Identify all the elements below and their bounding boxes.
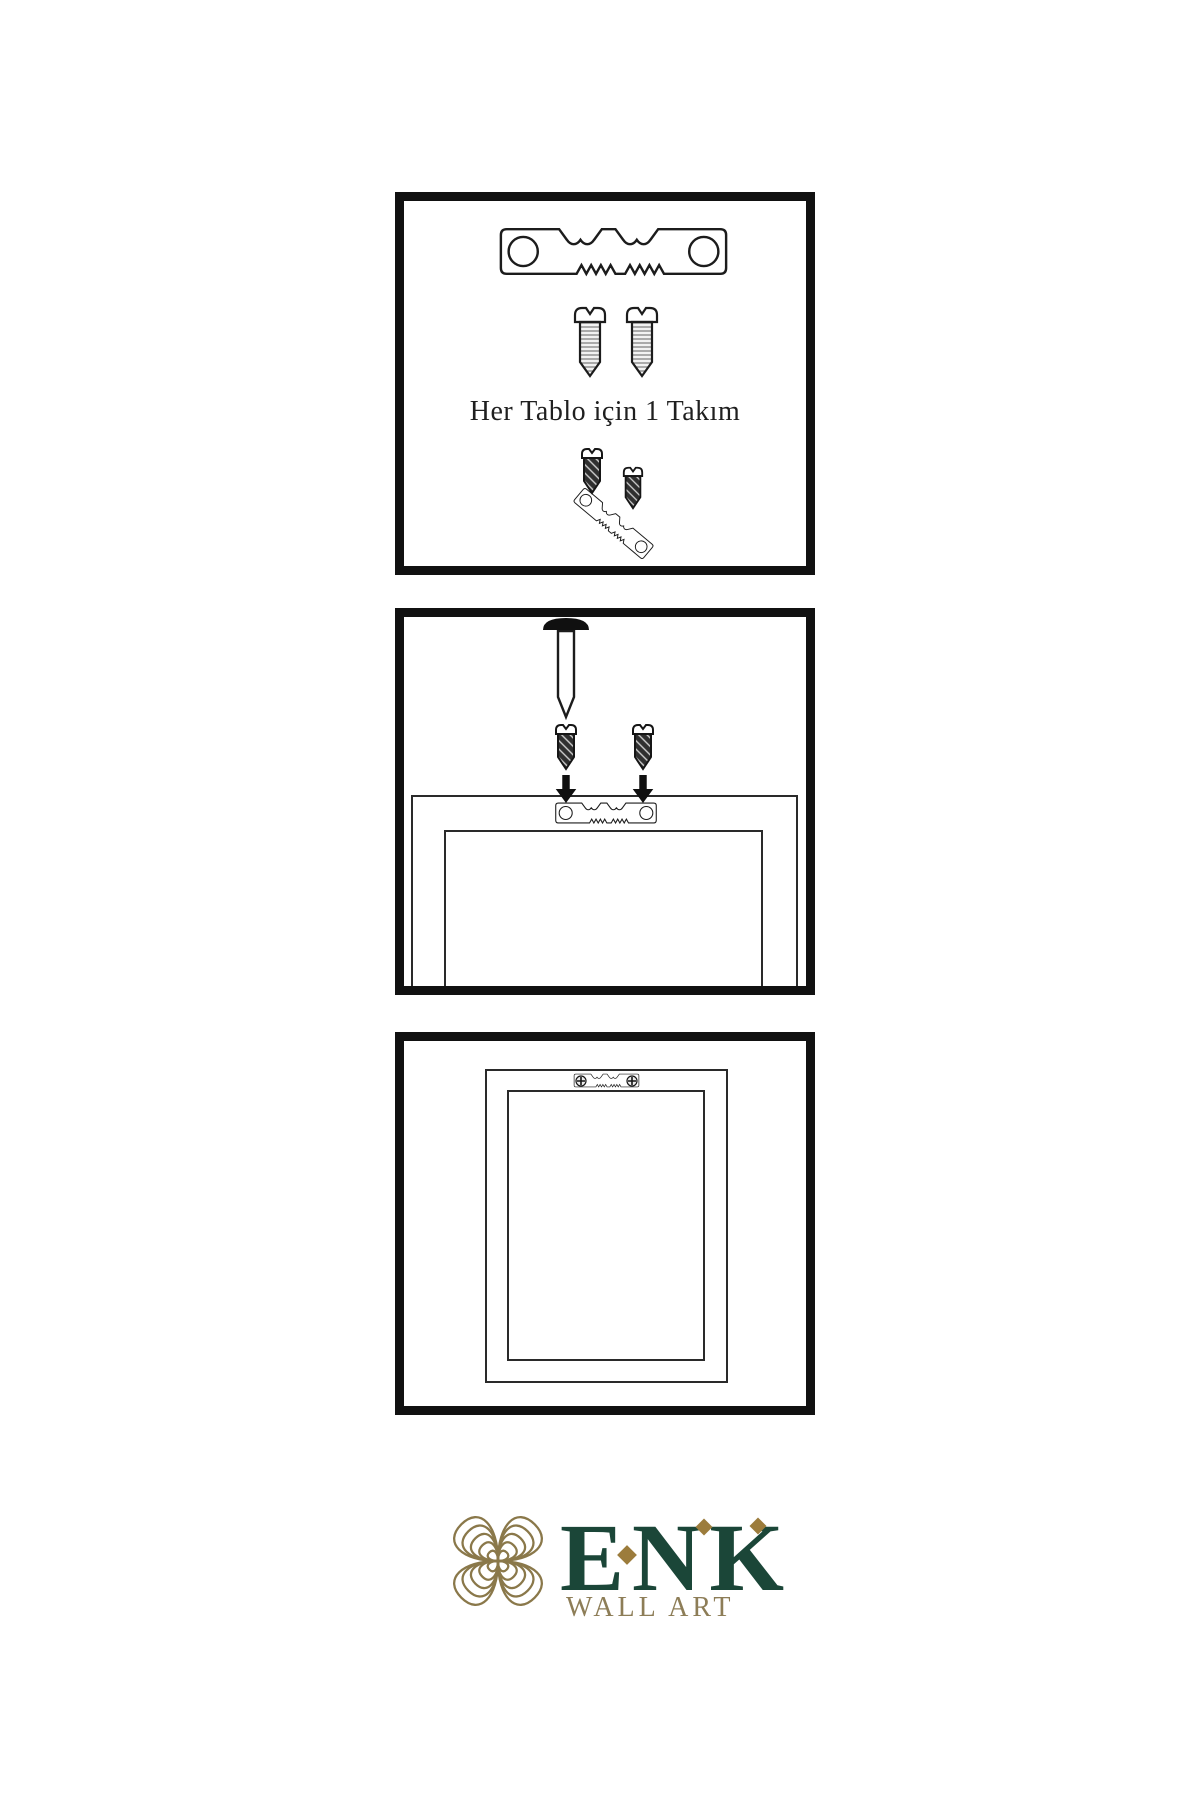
- screw-icon: [572, 305, 608, 379]
- knot-icon: [437, 1494, 559, 1628]
- sawtooth-hanger-icon: [554, 801, 658, 825]
- nail-icon: [542, 617, 590, 721]
- panel-step-2: [395, 608, 815, 995]
- down-arrow-icon: [555, 775, 577, 803]
- phillips-screw-icon: [575, 1075, 587, 1087]
- instruction-sheet: Her Tablo için 1 Takım ENK WALL ART: [0, 0, 1200, 1800]
- sawtooth-hanger-icon: [497, 225, 730, 278]
- frame-back-inner: [444, 830, 763, 995]
- screw-icon: [630, 722, 656, 772]
- frame-back-inner: [507, 1090, 705, 1361]
- phillips-screw-icon: [626, 1075, 638, 1087]
- panel-step-1: Her Tablo için 1 Takım: [395, 192, 815, 575]
- screw-icon: [579, 446, 605, 496]
- screw-icon: [624, 305, 660, 379]
- screw-icon: [553, 722, 579, 772]
- panel-step-3: [395, 1032, 815, 1415]
- down-arrow-icon: [632, 775, 654, 803]
- brand-subtitle: WALL ART: [566, 1592, 735, 1624]
- hanger-set-caption: Her Tablo için 1 Takım: [404, 396, 806, 428]
- screw-icon: [621, 465, 645, 511]
